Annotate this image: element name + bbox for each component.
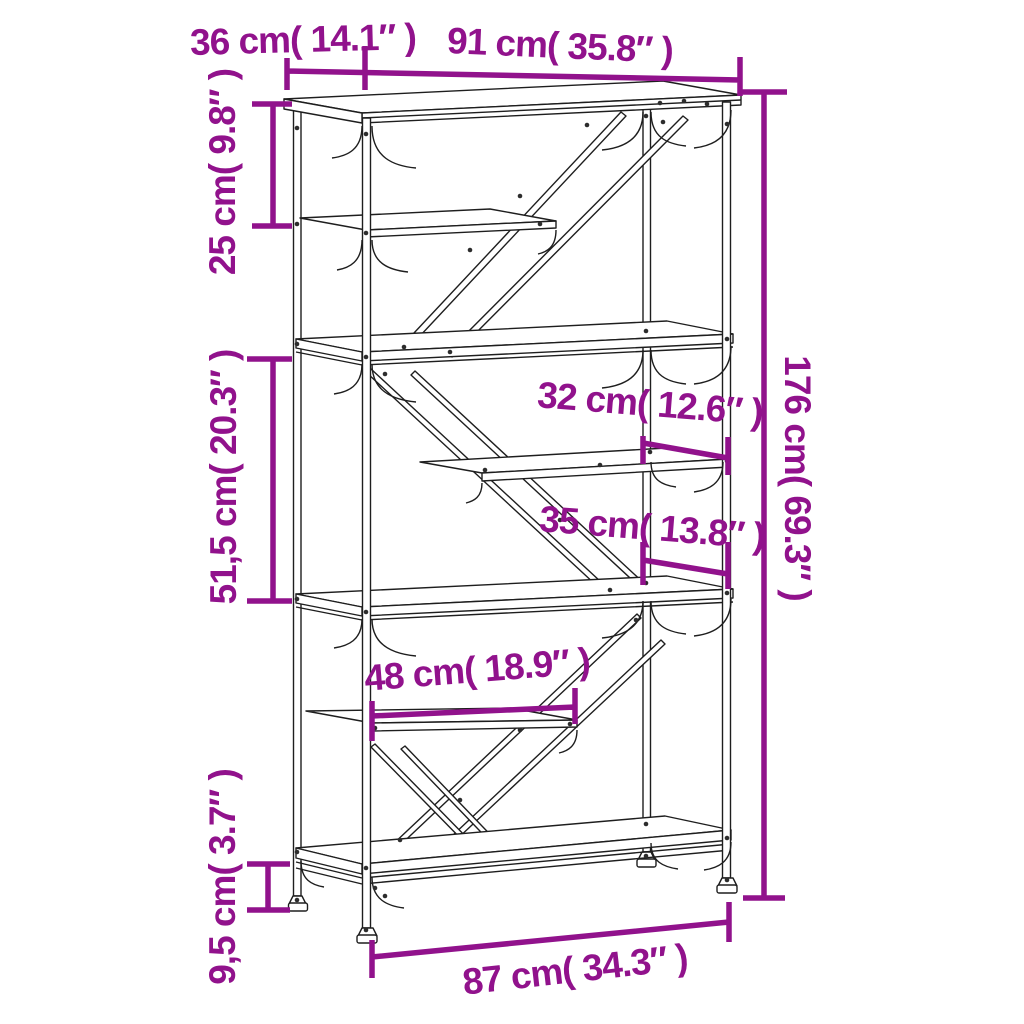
front-left-post bbox=[363, 118, 371, 928]
second-shelf bbox=[296, 321, 733, 365]
dim-line-middle-gap bbox=[247, 359, 292, 601]
upper-half-shelf bbox=[300, 209, 556, 237]
front-right-post bbox=[723, 102, 731, 878]
right-inner-shelf bbox=[420, 448, 729, 481]
dim-line-bottom-clearance bbox=[247, 864, 290, 910]
dimension-diagram: 36 cm( 14.1″ ) 91 cm( 35.8″ ) 25 cm( 9.8… bbox=[0, 0, 1024, 1024]
third-shelf bbox=[296, 576, 733, 620]
top-panel bbox=[284, 81, 741, 123]
dim-line-upper-gap bbox=[252, 104, 292, 226]
dim-label-middle-shelf-gap: 51,5 cm( 20.3″ ) bbox=[198, 297, 250, 657]
bottom-shelf bbox=[296, 816, 731, 884]
dim-label-bottom-clearance: 9,5 cm( 3.7″ ) bbox=[197, 697, 249, 1024]
dim-label-total-height: 176 cm( 69.3″ ) bbox=[771, 298, 823, 658]
